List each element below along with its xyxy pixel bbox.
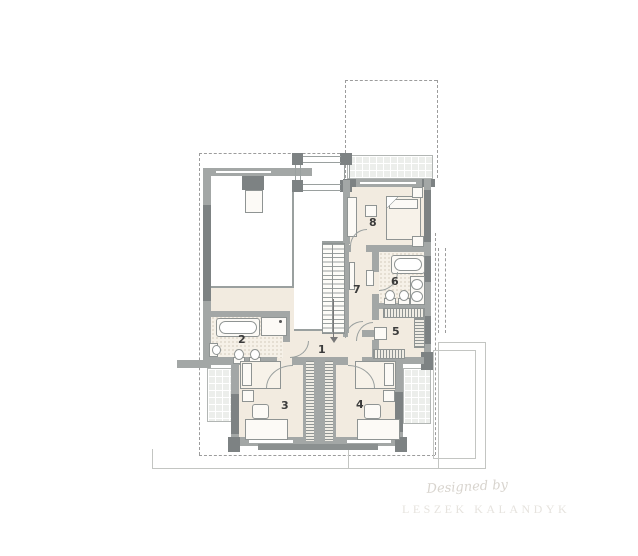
room-label-2: 2 <box>238 333 246 347</box>
watermark-designer-name: LESZEK KALANDYK <box>402 502 570 517</box>
room-label-1: 1 <box>318 343 326 357</box>
toilet-bowl-room2 <box>234 349 244 360</box>
window-right-bath6 <box>424 256 431 282</box>
nightstand-room4 <box>383 390 395 402</box>
window-left-wall <box>203 205 211 301</box>
sink-room6-b <box>411 291 423 302</box>
nightstand-room3 <box>242 390 254 402</box>
pillow-room3 <box>242 363 252 386</box>
nightstand-room8-top <box>412 187 423 198</box>
chimney-block <box>242 176 264 190</box>
watermark-designed-by: Designed by <box>418 478 509 498</box>
shelf-room7 <box>366 270 374 286</box>
room-label-3: 3 <box>281 399 289 413</box>
staircase-arrow-head <box>330 337 338 343</box>
bidet-bowl-room2 <box>250 349 260 360</box>
chair-room4 <box>364 404 381 419</box>
window-room3-bottom <box>249 440 293 443</box>
room-label-4: 4 <box>356 398 364 412</box>
room-label-6: 6 <box>391 275 399 289</box>
pillow-room4 <box>384 363 394 386</box>
floor-corridor <box>211 288 294 312</box>
toilet-bowl-room6 <box>385 290 395 301</box>
room-label-7: 7 <box>353 283 361 297</box>
sink-bowl-room2 <box>212 345 221 355</box>
roof-outline-top <box>199 153 345 154</box>
wardrobe-room4 <box>322 361 336 441</box>
roof-outline-left <box>199 153 200 455</box>
lower-level-line-left <box>152 449 153 468</box>
void-railing-vertical <box>292 182 294 288</box>
bidet-bowl-room6 <box>399 290 409 301</box>
roof-edge-strip-b <box>445 248 446 333</box>
fireplace-flue-box <box>245 190 263 213</box>
shower-room2 <box>261 317 287 336</box>
terrace-edge-band <box>258 444 378 450</box>
window-void-top <box>216 171 271 173</box>
beam-top-2 <box>303 162 341 163</box>
lower-level-line-bottom <box>152 468 485 469</box>
pillar-top-b <box>340 153 352 165</box>
window-right-room5 <box>424 316 431 344</box>
desk-room4 <box>357 419 400 440</box>
void-railing-horizontal <box>211 286 294 288</box>
balcony-top <box>347 155 433 179</box>
wall-7-5-mid <box>372 294 379 320</box>
balcony-right <box>403 368 431 424</box>
window-room8-right <box>424 190 431 242</box>
roof-outline-bottom <box>199 455 435 456</box>
room-label-5: 5 <box>392 325 400 339</box>
shelf-room5-bottom <box>373 349 405 359</box>
beam-side-b1 <box>344 165 345 180</box>
nightstand-room8-side <box>412 236 424 247</box>
pillar-low-a <box>292 180 303 192</box>
roof-outline-top-terrace-top <box>345 80 437 81</box>
beam-low-2 <box>303 190 341 191</box>
staircase-arrow-line <box>333 299 334 337</box>
window-room8-top <box>360 182 416 184</box>
beam-side-a1 <box>295 165 296 180</box>
shelf-room5-top <box>383 308 425 318</box>
lower-terrace-outline-inner <box>433 350 476 459</box>
blanket-fold-room8 <box>387 197 398 208</box>
beam-low-1 <box>303 184 341 185</box>
shower-drain-room2 <box>279 320 282 323</box>
beam-top-1 <box>303 156 341 157</box>
pillar-top-a <box>292 153 303 165</box>
wardrobe-room3 <box>303 361 317 441</box>
wardrobe-room8 <box>347 197 357 237</box>
corner-block-room3 <box>228 437 240 452</box>
stool-room5 <box>374 327 387 340</box>
desk-room3 <box>245 419 288 440</box>
sink-room6-a <box>411 279 423 290</box>
beam-side-a2 <box>300 165 301 180</box>
room-label-8: 8 <box>369 216 377 230</box>
shelf-room5-right <box>414 318 425 348</box>
window-room3-left <box>231 394 239 434</box>
chair-room3 <box>252 404 269 419</box>
beam-side-b2 <box>349 165 350 180</box>
floor-plan: 1 2 3 4 5 6 7 8 Designed by LESZEK KALAN… <box>0 0 638 556</box>
roof-outline-top-terrace-right <box>437 80 438 178</box>
bathtub-basin-room6 <box>394 258 422 271</box>
window-room4-bottom <box>347 440 391 443</box>
wall-7-6-upper <box>372 252 379 272</box>
roof-edge-strip-a <box>438 248 439 333</box>
balcony-left <box>207 368 232 422</box>
stairwell-railing-bottom <box>294 329 322 331</box>
